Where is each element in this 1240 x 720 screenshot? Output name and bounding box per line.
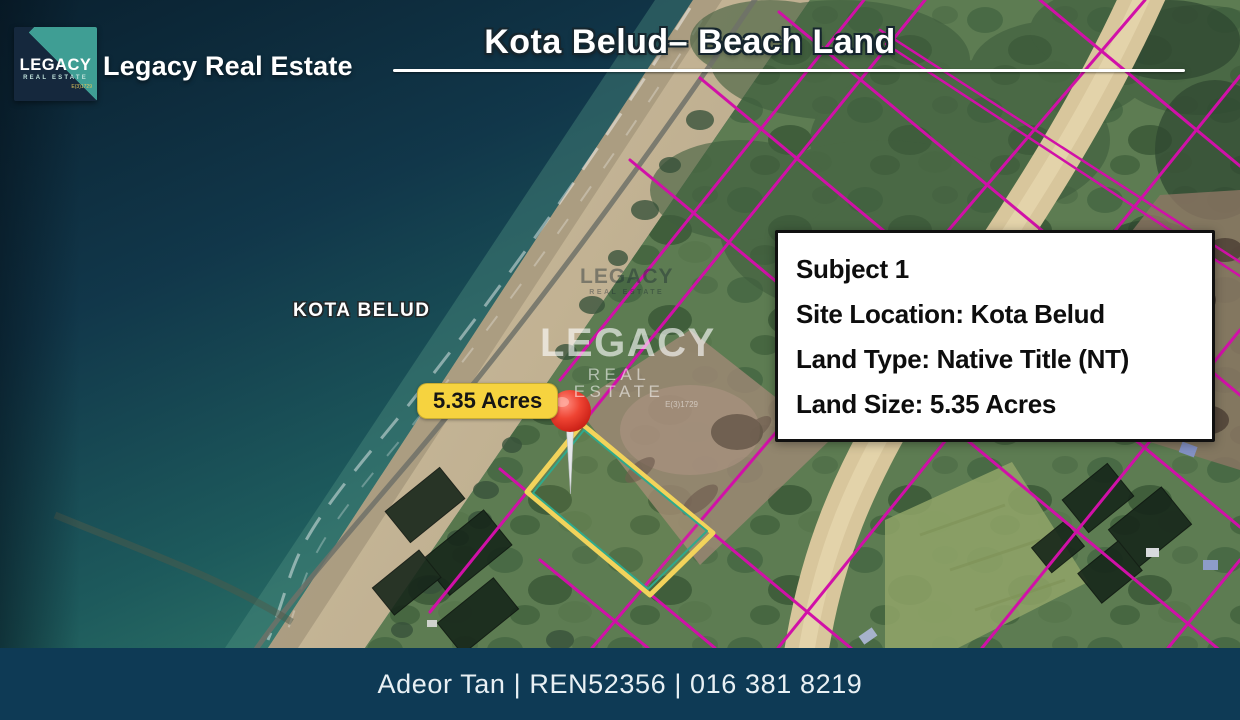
subject-info-box: Subject 1 Site Location: Kota Belud Land… (775, 230, 1215, 442)
watermark-line1: LEGACY (540, 323, 698, 363)
info-subject: Subject 1 (796, 247, 1194, 292)
info-land-size: Land Size: 5.35 Acres (796, 382, 1194, 427)
watermark-line2: REAL ESTATE (540, 366, 698, 400)
page-title: Kota Belud– Beach Land (430, 23, 950, 62)
watermark-small-line2: REAL ESTATE (580, 289, 674, 296)
legacy-logo: LEGACY REAL ESTATE E(3)1729 (14, 27, 97, 101)
info-site-location: Site Location: Kota Belud (796, 292, 1194, 337)
logo-wordmark: LEGACY (14, 56, 97, 75)
title-underline (393, 69, 1185, 72)
logo-subtitle: REAL ESTATE (14, 75, 97, 81)
brand-name: Legacy Real Estate (103, 51, 353, 82)
watermark-small-line1: LEGACY (580, 266, 674, 287)
place-label: KOTA BELUD (293, 300, 430, 322)
agent-footer-bar: Adeor Tan | REN52356 | 016 381 8219 (0, 648, 1240, 720)
watermark-license: E(3)1729 (540, 401, 698, 409)
watermark-big: LEGACY REAL ESTATE E(3)1729 (540, 323, 698, 409)
logo-license: E(3)1729 (71, 84, 92, 90)
area-badge: 5.35 Acres (417, 383, 558, 419)
info-land-type: Land Type: Native Title (NT) (796, 337, 1194, 382)
listing-flyer: LEGACY REAL ESTATE E(3)1729 Legacy Real … (0, 0, 1240, 720)
agent-contact: Adeor Tan | REN52356 | 016 381 8219 (378, 669, 863, 700)
watermark-small: LEGACY REAL ESTATE (580, 266, 674, 296)
